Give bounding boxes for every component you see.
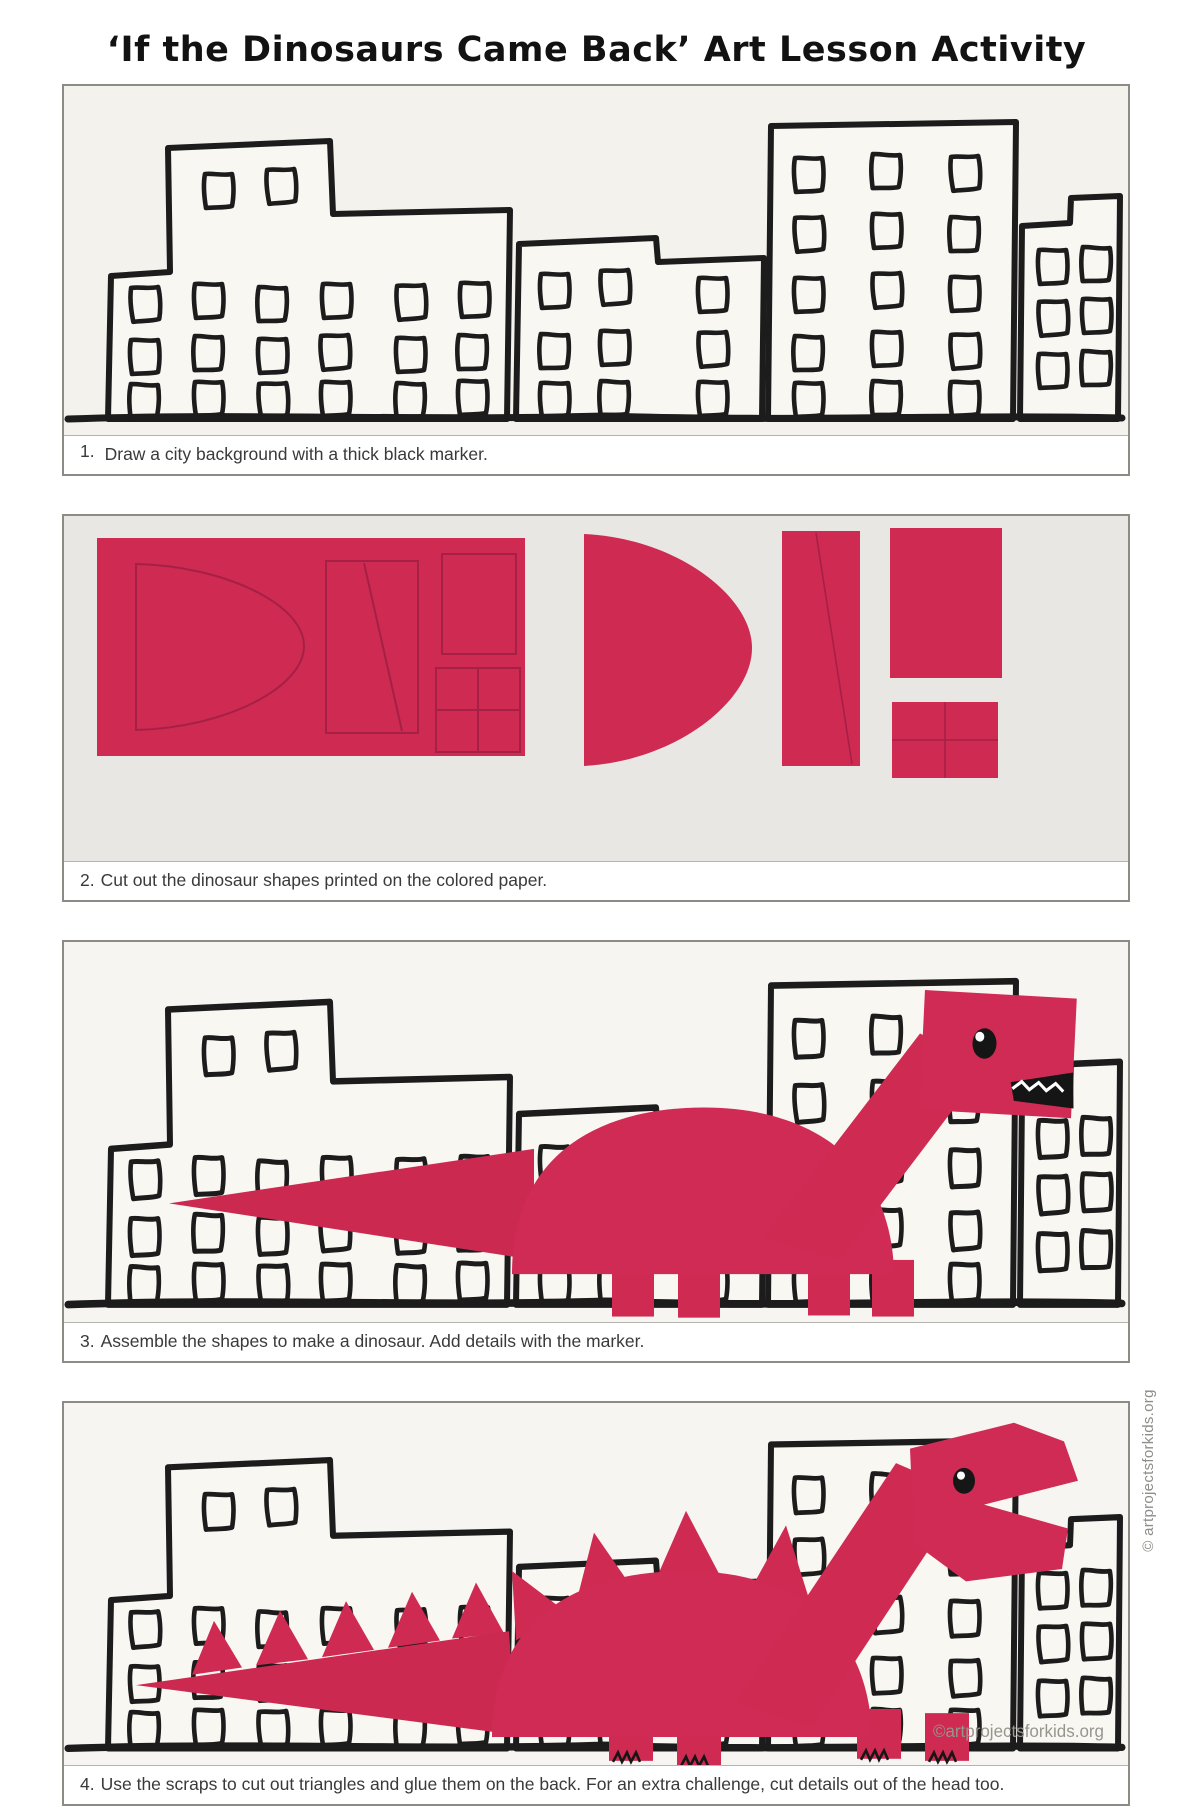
dinosaur-eye: [953, 1468, 975, 1494]
step-4-photo: ©artprojectsforkids.org: [64, 1403, 1128, 1765]
cutout-head: [890, 528, 1002, 678]
step-4-text: Use the scraps to cut out triangles and …: [101, 1774, 1005, 1794]
spiked-dinosaur-drawing: ©artprojectsforkids.org: [64, 1403, 1128, 1765]
step-2-text: Cut out the dinosaur shapes printed on t…: [101, 870, 548, 890]
cutout-pieces: [584, 528, 1002, 778]
cutout-body: [584, 534, 752, 766]
step-2-caption: 2.Cut out the dinosaur shapes printed on…: [64, 861, 1128, 900]
step-4-number: 4.: [80, 1774, 95, 1794]
step-1-photo: [64, 86, 1128, 435]
step-1-caption: 1.Draw a city background with a thick bl…: [64, 435, 1128, 474]
city-drawing: [64, 86, 1128, 435]
photo-watermark: ©artprojectsforkids.org: [933, 1721, 1104, 1741]
step-2-number: 2.: [80, 870, 95, 890]
dinosaur-head: [910, 1423, 1078, 1582]
step-3-number: 3.: [80, 1331, 95, 1351]
assembled-dinosaur-drawing: [64, 942, 1128, 1322]
step-1-panel: 1.Draw a city background with a thick bl…: [62, 84, 1130, 476]
dinosaur-claws: [613, 1750, 956, 1765]
eye-highlight: [957, 1471, 965, 1479]
step-1-number: 1.: [80, 441, 95, 461]
paper-shapes-drawing: [64, 516, 1128, 861]
side-credit: © artprojectsforkids.org: [1140, 1378, 1157, 1563]
step-4-caption: 4.Use the scraps to cut out triangles an…: [64, 1765, 1128, 1804]
step-1-text: Draw a city background with a thick blac…: [105, 444, 488, 464]
step-2-panel: 2.Cut out the dinosaur shapes printed on…: [62, 514, 1130, 902]
step-3-text: Assemble the shapes to make a dinosaur. …: [101, 1331, 645, 1351]
dinosaur-head: [919, 990, 1079, 1118]
step-3-panel: 3.Assemble the shapes to make a dinosaur…: [62, 940, 1130, 1363]
step-2-photo: [64, 516, 1128, 861]
pink-paper-sheet: [97, 538, 525, 756]
page-title: ‘If the Dinosaurs Came Back’ Art Lesson …: [0, 0, 1193, 84]
step-3-photo: [64, 942, 1128, 1322]
step-4-panel: ©artprojectsforkids.org 4.Use the scraps…: [62, 1401, 1130, 1806]
step-3-caption: 3.Assemble the shapes to make a dinosaur…: [64, 1322, 1128, 1361]
